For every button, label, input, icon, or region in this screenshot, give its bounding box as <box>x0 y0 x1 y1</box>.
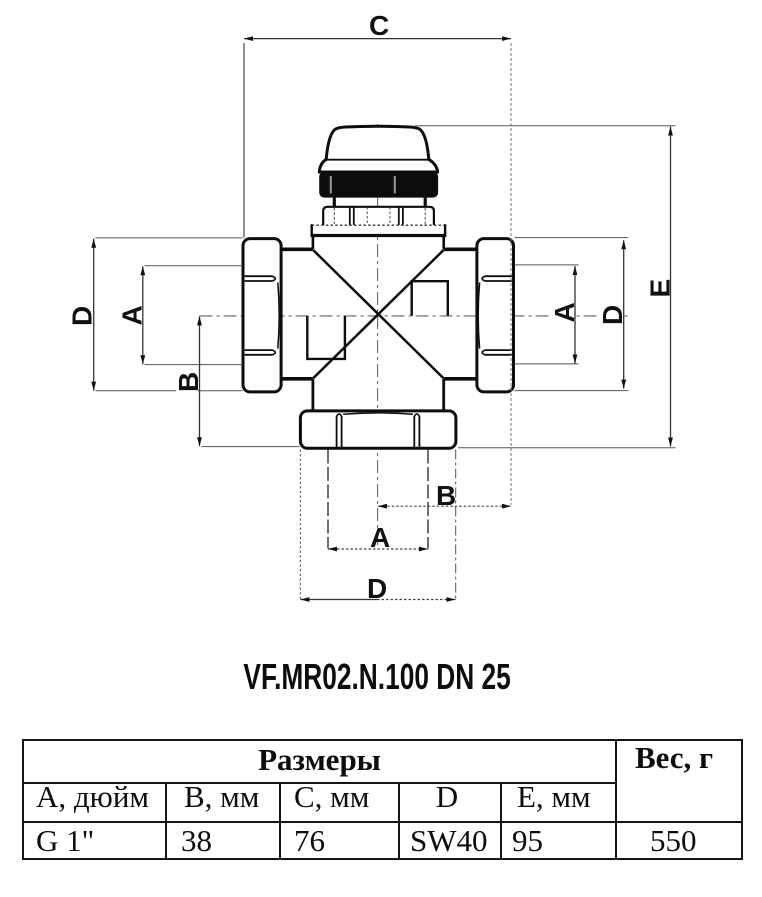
svg-text:D: D <box>67 306 98 326</box>
svg-text:C: C <box>369 10 389 41</box>
svg-text:A: A <box>117 305 148 325</box>
svg-text:A: A <box>370 522 390 553</box>
svg-text:D: D <box>597 305 628 325</box>
svg-text:B: B <box>173 372 204 392</box>
svg-text:E: E <box>645 279 676 298</box>
svg-text:A: A <box>549 302 580 322</box>
svg-text:B: B <box>436 480 456 511</box>
svg-text:D: D <box>367 573 387 604</box>
